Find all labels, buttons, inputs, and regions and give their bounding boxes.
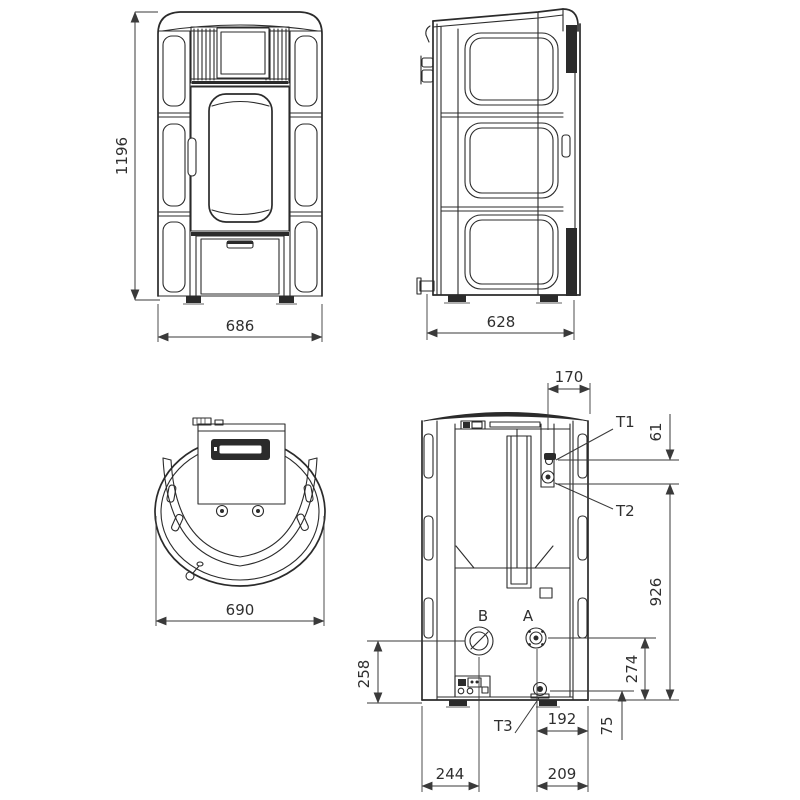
b-height-dimension: 258 (355, 641, 465, 703)
top-display-panel (211, 439, 270, 460)
a-label: A (523, 607, 534, 625)
side-right-foot (540, 295, 558, 302)
t3-offset-value: 192 (548, 710, 577, 728)
t1-label: T1 (615, 413, 635, 431)
front-grille (191, 27, 289, 86)
flue-offset-dimension: 170 (548, 368, 590, 430)
t3-height-value: 75 (598, 716, 616, 735)
side-depth-value: 628 (487, 313, 516, 331)
flue-offset-value: 170 (555, 368, 584, 386)
rear-left-foot (449, 700, 467, 706)
front-width-dimension: 686 (158, 304, 322, 342)
t1-callout: T1 (556, 413, 635, 460)
front-width-value: 686 (226, 317, 255, 335)
b-label: B (478, 607, 488, 625)
rear-top-bracket (426, 26, 430, 42)
b-offset-value: 244 (436, 765, 465, 783)
b-offset-dimension: 244 (422, 657, 479, 792)
t3-offset-dimension: 192 (537, 710, 588, 731)
front-height-value: 1196 (113, 137, 131, 175)
side-view (417, 9, 580, 303)
connection-t3 (531, 683, 549, 699)
return-height-value: 926 (647, 578, 665, 607)
sensor-t2 (542, 471, 554, 483)
t3-callout: T3 (493, 698, 539, 735)
b-height-value: 258 (355, 660, 373, 689)
front-left-foot (186, 296, 201, 303)
technical-drawing-page: 1196 686 (0, 0, 800, 800)
t2-label: T2 (615, 502, 635, 520)
drawing-canvas: 1196 686 (0, 0, 800, 800)
a-height-value: 274 (623, 655, 641, 684)
top-width-value: 690 (226, 601, 255, 619)
a-offset-value: 209 (548, 765, 577, 783)
t3-label: T3 (493, 717, 513, 735)
door-handle (188, 138, 196, 176)
front-height-dimension: 1196 (113, 12, 160, 300)
sensor-gap-dimension: 61 (647, 414, 670, 460)
t2-callout: T2 (555, 483, 635, 520)
connection-a (526, 628, 546, 648)
front-view (158, 12, 322, 304)
side-left-foot (448, 295, 466, 302)
front-right-foot (279, 296, 294, 303)
door-latch (562, 135, 570, 157)
connection-b (465, 627, 493, 655)
control-box (455, 676, 490, 697)
front-drawer (191, 232, 289, 296)
top-view (155, 418, 325, 586)
rear-pipe-upper (422, 58, 433, 67)
rear-drain-stub (420, 281, 434, 291)
sensor-gap-value: 61 (647, 422, 665, 441)
top-width-dimension: 690 (156, 516, 324, 626)
front-door (188, 87, 289, 231)
rear-pipe-lower (422, 70, 433, 82)
rear-right-foot (539, 700, 557, 706)
